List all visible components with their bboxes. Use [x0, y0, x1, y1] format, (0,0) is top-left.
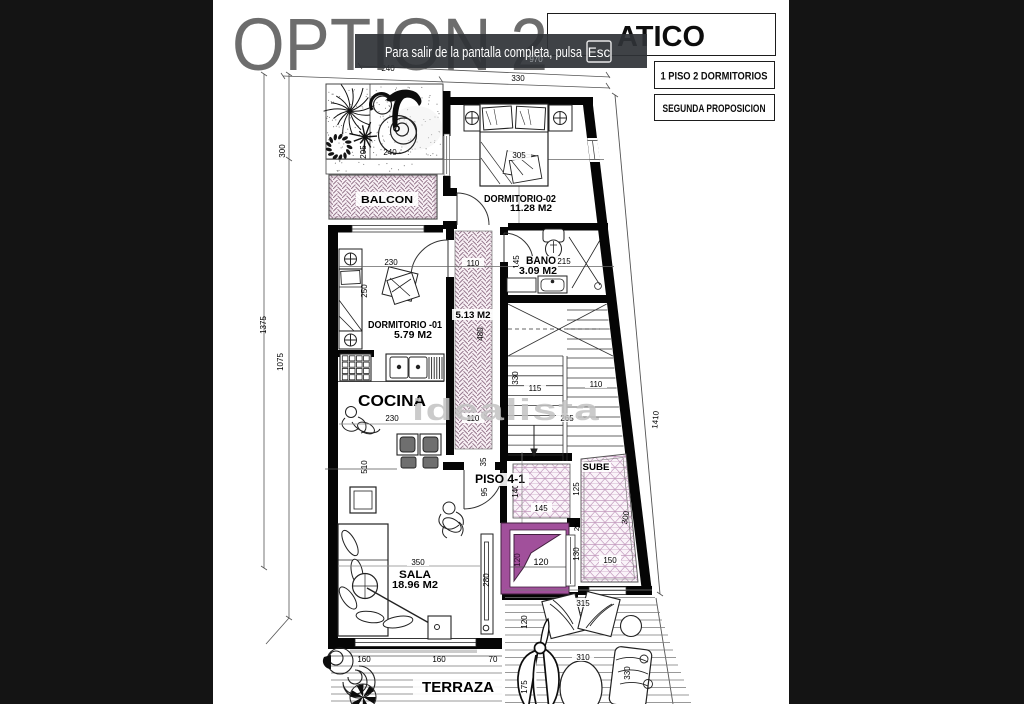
svg-text:480: 480 [476, 327, 485, 341]
svg-text:idealista: idealista [412, 392, 600, 427]
svg-text:1410: 1410 [650, 410, 661, 429]
svg-text:120: 120 [520, 615, 529, 629]
svg-text:5.13 M2: 5.13 M2 [456, 310, 491, 320]
svg-text:130: 130 [572, 547, 581, 561]
svg-text:330: 330 [511, 371, 520, 385]
svg-text:175: 175 [520, 680, 529, 694]
svg-text:35: 35 [479, 457, 488, 466]
svg-text:70: 70 [489, 655, 498, 664]
svg-text:305: 305 [512, 151, 526, 160]
svg-text:350: 350 [411, 558, 425, 567]
svg-text:5.79 M2: 5.79 M2 [394, 330, 432, 341]
svg-text:SEGUNDA PROPOSICION: SEGUNDA PROPOSICION [663, 103, 766, 115]
svg-text:18.96 M2: 18.96 M2 [392, 580, 438, 591]
svg-text:Esc: Esc [588, 45, 611, 60]
svg-text:230: 230 [384, 258, 398, 267]
svg-text:250: 250 [360, 284, 369, 298]
svg-text:BALCON: BALCON [361, 195, 413, 206]
svg-text:95: 95 [480, 487, 489, 496]
svg-text:205: 205 [359, 145, 368, 159]
svg-text:970: 970 [529, 55, 543, 64]
svg-text:230: 230 [385, 414, 399, 423]
svg-text:120: 120 [533, 557, 548, 567]
svg-text:3.09 M2: 3.09 M2 [519, 266, 557, 277]
svg-text:510: 510 [360, 460, 369, 474]
svg-text:SUBE: SUBE [583, 462, 610, 473]
svg-text:26: 26 [572, 523, 581, 531]
svg-text:1 PISO 2 DORMITORIOS: 1 PISO 2 DORMITORIOS [661, 71, 768, 83]
svg-text:1075: 1075 [276, 353, 285, 371]
svg-text:280: 280 [482, 573, 491, 587]
svg-text:110: 110 [590, 380, 603, 389]
svg-text:330: 330 [623, 666, 632, 680]
svg-text:160: 160 [357, 655, 371, 664]
svg-text:125: 125 [572, 482, 581, 496]
svg-text:145: 145 [534, 504, 548, 513]
svg-text:315: 315 [576, 599, 590, 608]
svg-text:11.28 M2: 11.28 M2 [510, 203, 552, 214]
svg-text:160: 160 [432, 655, 446, 664]
svg-text:300: 300 [278, 144, 287, 158]
svg-text:TERRAZA: TERRAZA [422, 679, 494, 696]
svg-text:120: 120 [513, 553, 522, 567]
svg-text:240: 240 [383, 148, 397, 157]
svg-text:1375: 1375 [259, 316, 268, 334]
svg-text:PISO 4-1: PISO 4-1 [475, 472, 525, 486]
svg-text:150: 150 [603, 556, 617, 565]
svg-text:215: 215 [557, 257, 571, 266]
svg-text:310: 310 [576, 653, 590, 662]
